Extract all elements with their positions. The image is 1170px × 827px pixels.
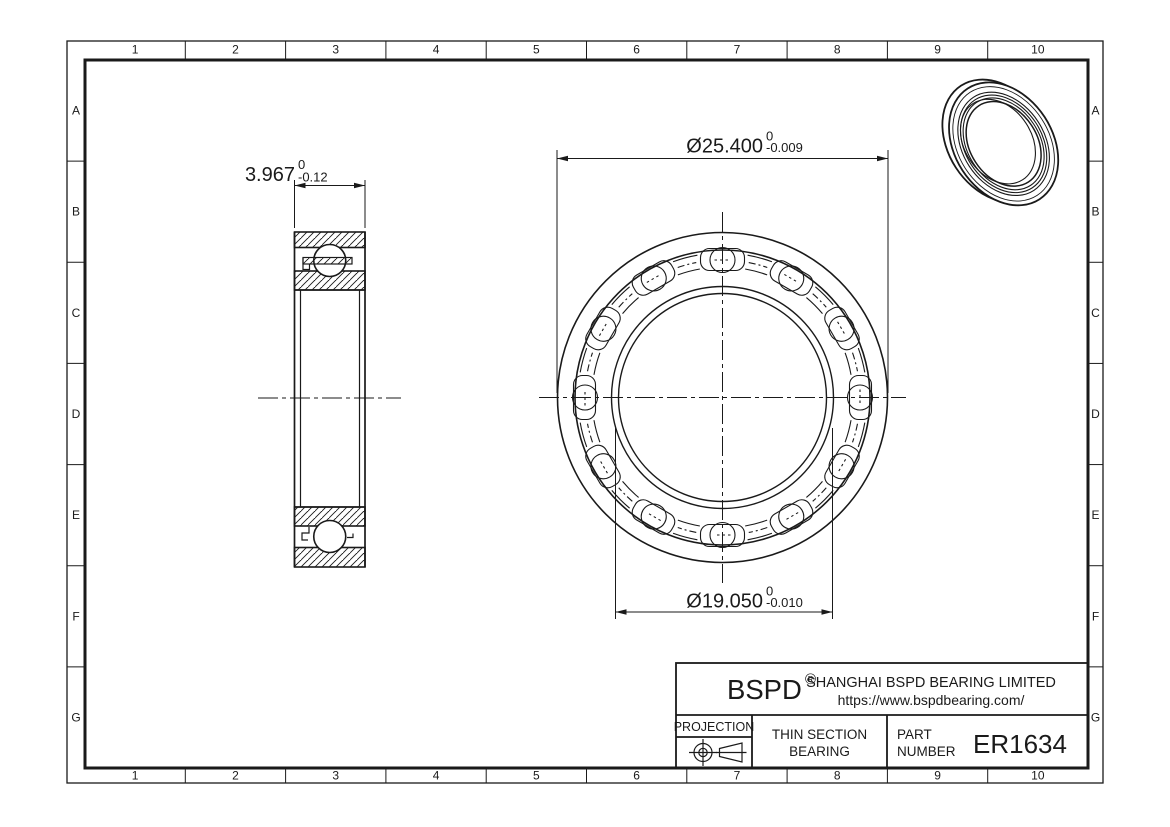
pitch-mark xyxy=(647,274,661,282)
arrowhead xyxy=(557,156,568,162)
part-number-label-line2: NUMBER xyxy=(897,744,956,759)
width-dimension-value: 3.967 xyxy=(245,164,295,186)
product-name-line2: BEARING xyxy=(789,744,850,759)
pitch-circle-arc xyxy=(619,291,633,310)
pitch-circle-arc xyxy=(810,294,829,308)
grid-row-label-right-D: D xyxy=(1091,407,1100,421)
ball-bottom-section xyxy=(314,521,346,553)
pitch-mark xyxy=(838,459,846,473)
product-name-line1: THIN SECTION xyxy=(772,727,867,742)
isometric-bearing-view xyxy=(920,57,1081,228)
projection-symbol-icon xyxy=(689,739,747,766)
cage-bridge-arc xyxy=(612,284,630,308)
pitch-mark xyxy=(784,274,798,282)
brand-logo: BSPD xyxy=(727,674,802,705)
inner-border xyxy=(85,60,1088,768)
arrowhead xyxy=(354,183,365,189)
grid-col-label-bottom-3: 3 xyxy=(332,769,339,783)
grid-row-label-right-F: F xyxy=(1092,609,1099,623)
grid-row-label-right-C: C xyxy=(1091,306,1100,320)
ball-pocket xyxy=(701,248,772,275)
cage-bridge-arc xyxy=(609,490,633,508)
grid-col-label-top-6: 6 xyxy=(633,43,640,57)
pitch-circle-arc xyxy=(616,488,635,502)
grid-row-label-left-G: G xyxy=(71,710,80,724)
engineering-drawing: 1122334455667788991010AABBCCDDEEFFGG 3 xyxy=(0,0,1170,827)
ball-pocket xyxy=(765,257,841,316)
pitch-circle-arc xyxy=(749,263,768,268)
bore-diameter-tolerance-lower: -0.010 xyxy=(766,595,803,610)
cage-bridge-arc xyxy=(673,533,697,540)
grid-col-label-bottom-9: 9 xyxy=(934,769,941,783)
pitch-circle-arc xyxy=(813,485,827,504)
cage-bridge-arc xyxy=(858,423,865,447)
cage-bridge-arc xyxy=(812,287,836,305)
grid-col-label-bottom-2: 2 xyxy=(232,769,239,783)
cage-bridge-arc xyxy=(745,269,767,275)
ball-pocket xyxy=(818,303,877,379)
ball-pocket xyxy=(573,348,600,419)
ball-pocket xyxy=(673,520,744,547)
grid-row-label-left-B: B xyxy=(72,205,80,219)
grid-col-label-top-1: 1 xyxy=(132,43,139,57)
cage-bridge-arc xyxy=(806,478,822,500)
grid-row-label-left-D: D xyxy=(72,407,81,421)
grid-row-label-right-E: E xyxy=(1091,508,1099,522)
pitch-circle-arc xyxy=(853,424,858,443)
company-name: SHANGHAI BSPD BEARING LIMITED xyxy=(806,675,1056,691)
grid-col-label-bottom-6: 6 xyxy=(633,769,640,783)
pitch-mark xyxy=(784,513,798,521)
grid-col-label-top-7: 7 xyxy=(734,43,741,57)
grid-row-label-right-G: G xyxy=(1091,710,1100,724)
cage-hook-bottom-left xyxy=(302,527,309,540)
cage-bridge-arc xyxy=(845,420,851,442)
grid-col-label-top-4: 4 xyxy=(433,43,440,57)
outer-diameter-value: Ø25.400 xyxy=(686,136,763,158)
front-view xyxy=(539,212,906,583)
cage-bar-top xyxy=(303,258,352,265)
arrowhead xyxy=(616,609,627,615)
pitch-circle-arc xyxy=(678,528,697,533)
grid-row-label-left-F: F xyxy=(72,609,79,623)
ball-pocket xyxy=(741,493,817,552)
grid-col-label-bottom-5: 5 xyxy=(533,769,540,783)
grid-col-label-bottom-1: 1 xyxy=(132,769,139,783)
grid-row-label-right-B: B xyxy=(1091,205,1099,219)
cage-bridge-arc xyxy=(594,353,600,375)
pitch-mark xyxy=(599,459,607,473)
ball-pocket xyxy=(582,280,641,356)
cage-bridge-arc xyxy=(815,487,833,511)
arrowhead xyxy=(877,156,888,162)
grid-col-label-bottom-7: 7 xyxy=(734,769,741,783)
part-number-value: ER1634 xyxy=(973,729,1067,759)
arrowhead xyxy=(822,609,833,615)
grid-col-label-bottom-8: 8 xyxy=(834,769,841,783)
width-dimension xyxy=(295,180,366,228)
ball-pocket xyxy=(568,416,627,492)
grid-col-label-bottom-10: 10 xyxy=(1031,769,1045,783)
grid-col-label-bottom-4: 4 xyxy=(433,769,440,783)
grid-col-label-top-2: 2 xyxy=(232,43,239,57)
ball-pocket xyxy=(804,440,863,516)
cage-bridge-arc xyxy=(623,295,639,317)
grid-row-label-left-E: E xyxy=(72,508,80,522)
grid-col-label-top-10: 10 xyxy=(1031,43,1045,57)
ball-pocket xyxy=(845,376,872,447)
cage-clip-bottom-right xyxy=(347,534,353,538)
grid-col-label-top-5: 5 xyxy=(533,43,540,57)
part-number-label-line1: PART xyxy=(897,727,932,742)
cage-bridge-arc xyxy=(748,255,772,262)
pitch-circle-arc xyxy=(588,353,593,372)
outer-diameter-tolerance-lower: -0.009 xyxy=(766,140,803,155)
bore-diameter-value: Ø19.050 xyxy=(686,591,763,613)
cage-bridge-arc xyxy=(580,348,587,372)
ball-pocket xyxy=(628,243,704,302)
pitch-mark xyxy=(838,322,846,336)
ball-pocket xyxy=(605,479,681,538)
projection-label: PROJECTION xyxy=(674,720,755,734)
pitch-mark xyxy=(599,322,607,336)
drawing-sheet: 1122334455667788991010AABBCCDDEEFFGG 3 xyxy=(0,0,1170,827)
grid-col-label-top-3: 3 xyxy=(332,43,339,57)
grid-row-label-right-A: A xyxy=(1091,104,1099,118)
width-tolerance-lower: -0.12 xyxy=(298,170,328,185)
grid-row-label-left-A: A xyxy=(72,104,80,118)
cage-bridge-arc xyxy=(803,298,825,314)
company-website: https://www.bspdbearing.com/ xyxy=(838,692,1025,708)
grid-row-label-left-C: C xyxy=(72,306,81,320)
grid-col-label-top-9: 9 xyxy=(934,43,941,57)
side-section-view xyxy=(258,232,401,567)
cage-bridge-arc xyxy=(620,481,642,497)
cage-bridge-arc xyxy=(678,520,700,526)
grid-col-label-top-8: 8 xyxy=(834,43,841,57)
pitch-mark xyxy=(647,513,661,521)
